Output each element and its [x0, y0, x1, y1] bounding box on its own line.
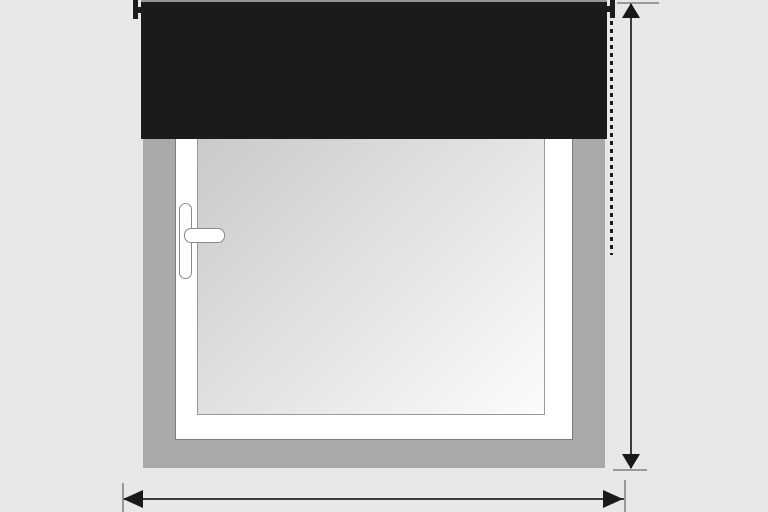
mounting-bracket-right-arm: [606, 6, 611, 12]
roller-blind: [141, 0, 607, 139]
height-measure-shaft: [630, 4, 632, 468]
width-measure-shaft: [124, 498, 624, 500]
diagram-canvas: [0, 0, 768, 512]
arrow-up-icon: [622, 3, 640, 18]
mounting-bracket-left-arm: [137, 7, 142, 13]
arrow-right-icon: [603, 490, 623, 508]
arrow-down-icon: [622, 454, 640, 469]
window-handle-lever: [184, 228, 225, 243]
height-measure-tick-bottom: [613, 469, 647, 471]
width-measure-tick-right: [624, 480, 626, 512]
drop-guide-dashed-line: [610, 21, 613, 255]
arrow-left-icon: [123, 490, 143, 508]
